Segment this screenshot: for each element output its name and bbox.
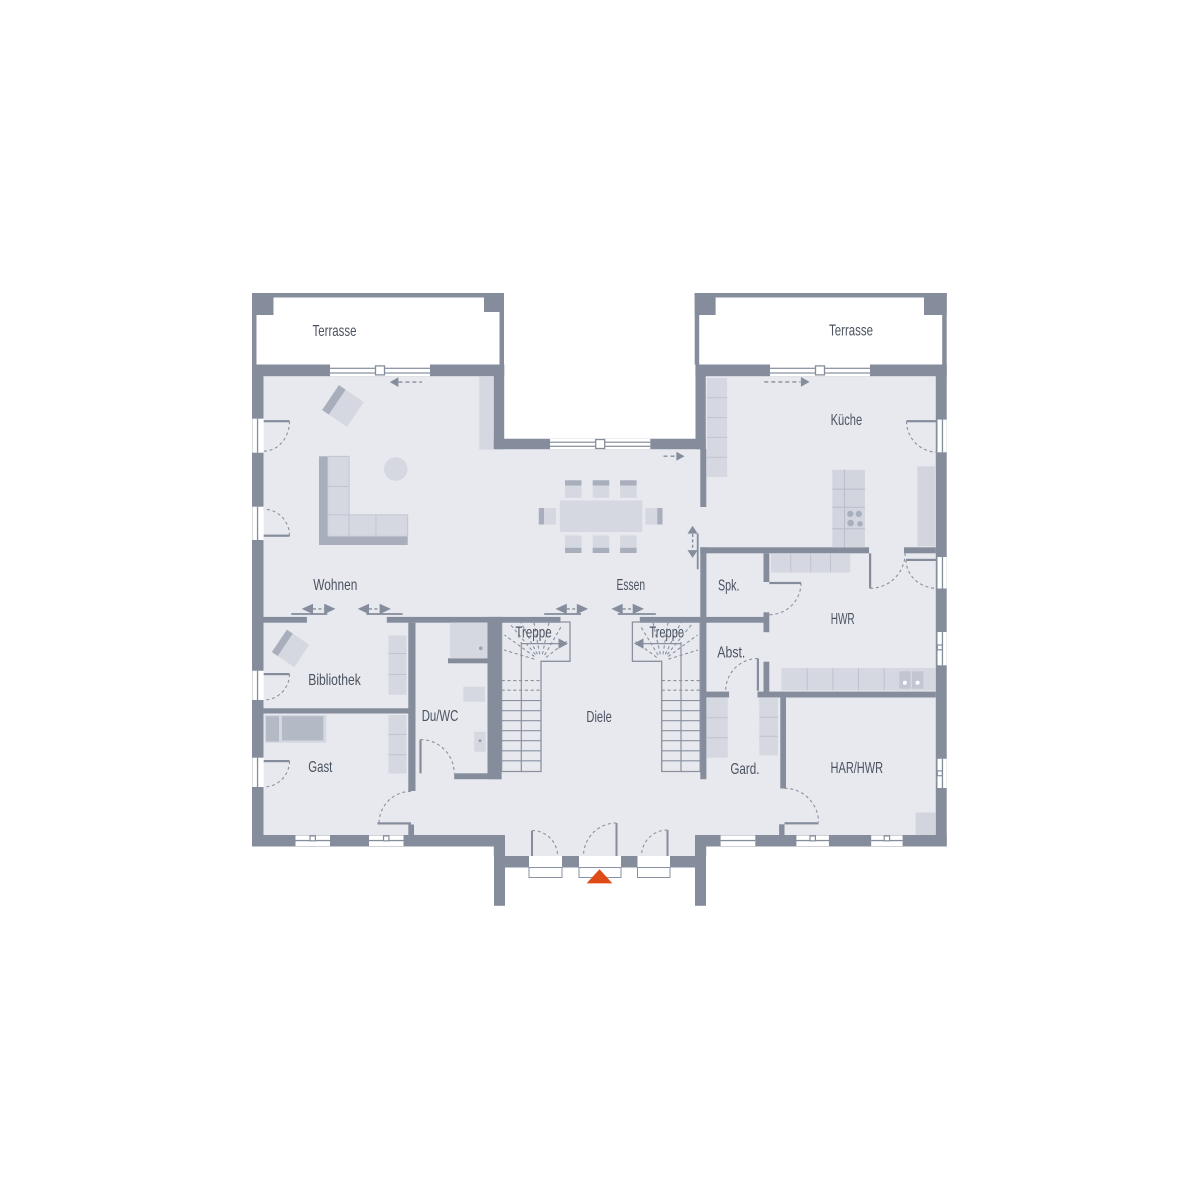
svg-text:Essen: Essen <box>617 577 646 594</box>
svg-text:Treppe: Treppe <box>649 625 684 642</box>
svg-text:Küche: Küche <box>831 412 863 429</box>
svg-text:Gard.: Gard. <box>730 761 759 778</box>
svg-text:HWR: HWR <box>831 611 855 628</box>
svg-text:Wohnen: Wohnen <box>313 577 357 594</box>
svg-text:HAR/HWR: HAR/HWR <box>831 760 884 777</box>
svg-text:Bibliothek: Bibliothek <box>308 672 361 689</box>
svg-text:Treppe: Treppe <box>515 625 551 642</box>
svg-text:Gast: Gast <box>308 759 332 776</box>
svg-text:Spk.: Spk. <box>718 577 740 594</box>
svg-text:Terrasse: Terrasse <box>313 323 357 340</box>
svg-text:Terrasse: Terrasse <box>829 323 873 340</box>
svg-text:Du/WC: Du/WC <box>422 708 459 725</box>
svg-text:Abst.: Abst. <box>717 644 745 661</box>
svg-text:Diele: Diele <box>586 709 611 726</box>
